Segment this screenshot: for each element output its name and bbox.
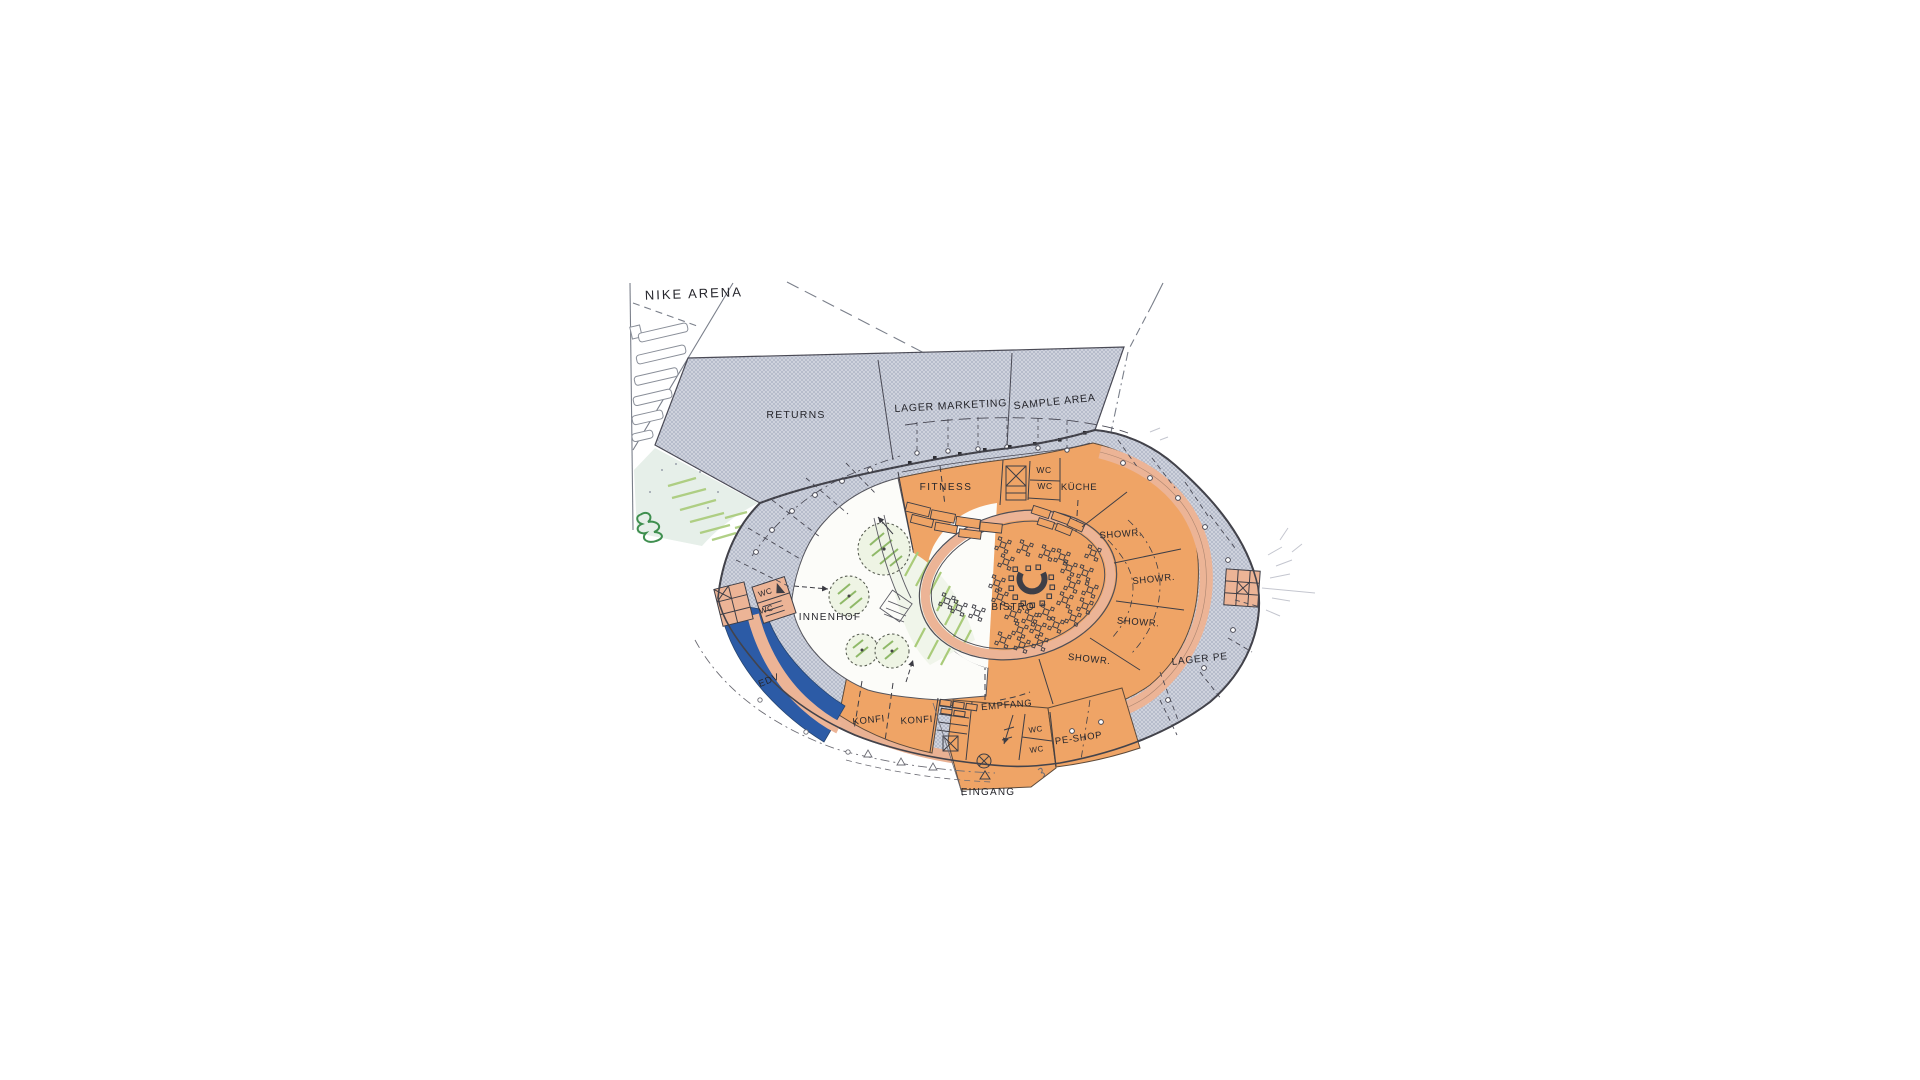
label-bistro: BISTRO (991, 602, 1034, 613)
label-wc-kueche-1: WC (1036, 465, 1051, 475)
label-fitness: FITNESS (920, 482, 973, 493)
label-nike-arena: NIKE ARENA (645, 284, 743, 302)
floor-plan-drawing: NIKE ARENARETURNSLAGER MARKETINGSAMPLE A… (0, 0, 1920, 1080)
tree-icon (829, 576, 869, 616)
label-eingang: EINGANG (961, 787, 1016, 798)
label-kueche: KÜCHE (1061, 482, 1097, 493)
tree-icon (858, 523, 910, 575)
label-innenhof: INNENHOF (799, 612, 862, 623)
label-wc-kueche-2: WC (1037, 481, 1052, 491)
label-konfi-2: KONFI (900, 714, 933, 727)
floor-plan-page: NIKE ARENARETURNSLAGER MARKETINGSAMPLE A… (0, 0, 1920, 1080)
label-returns: RETURNS (766, 409, 825, 421)
tree-icon (846, 634, 878, 666)
tree-icon (875, 634, 909, 668)
entrance-column-icon (977, 754, 991, 768)
